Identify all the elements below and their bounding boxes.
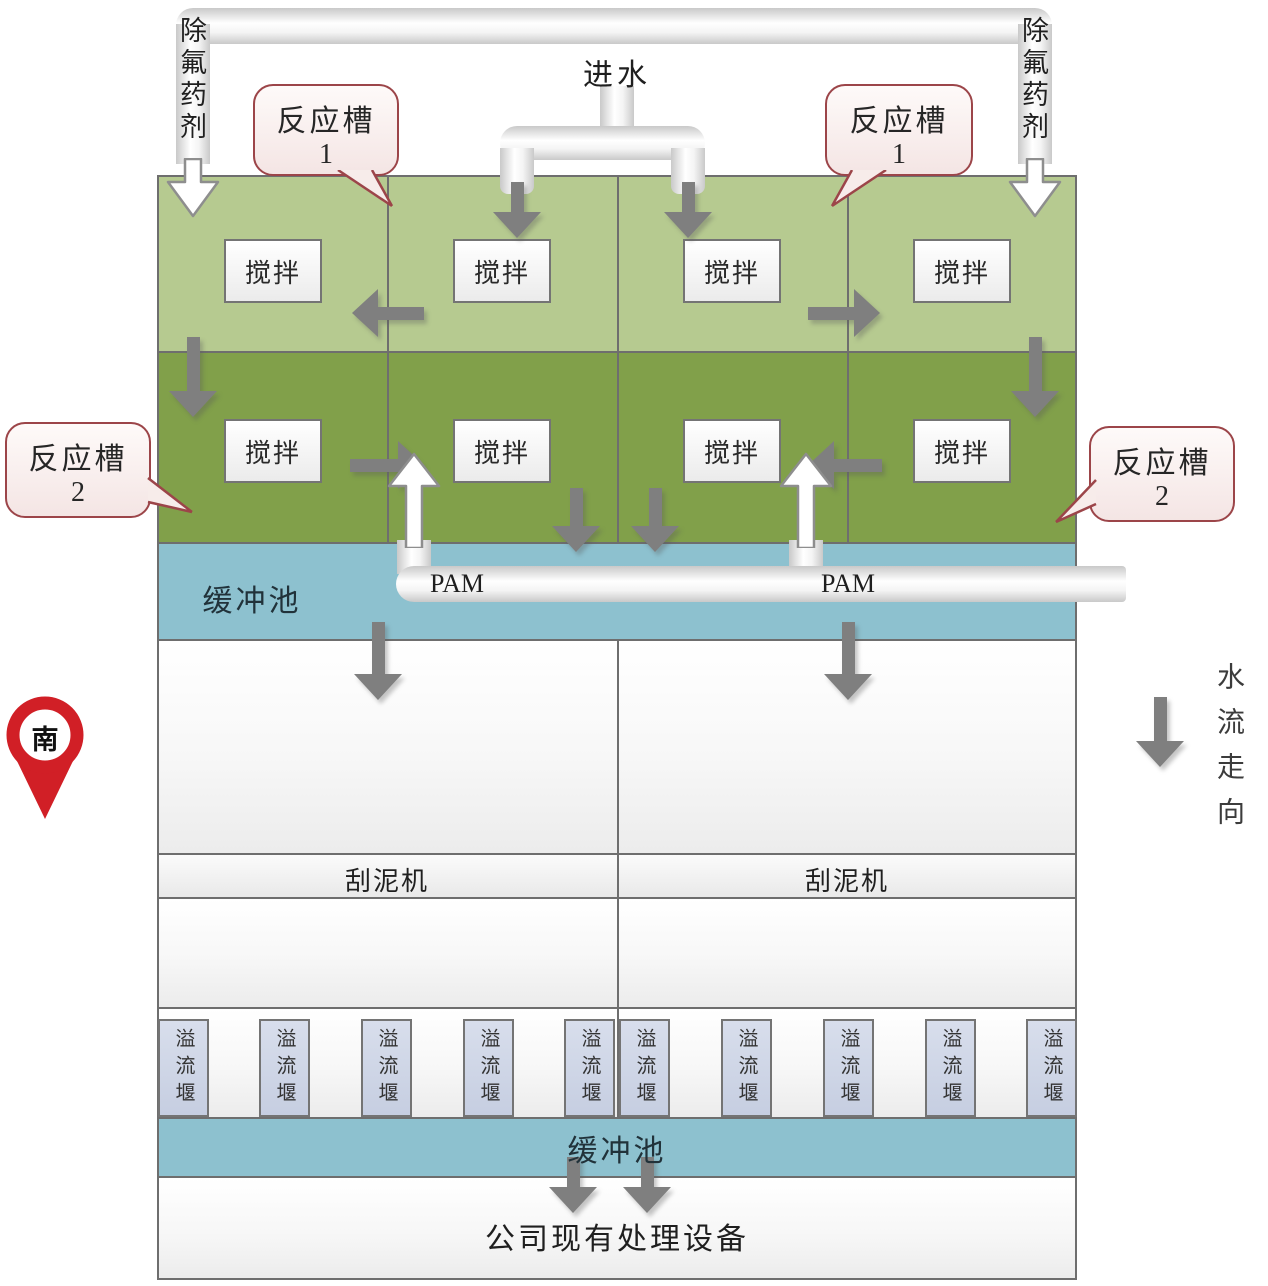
callout-tail: [332, 170, 396, 210]
lower-tank-row: [157, 897, 1077, 1009]
callout-number: 1: [255, 140, 397, 169]
overflow-weir: 溢流堰: [259, 1019, 310, 1117]
flow-arrow-down: [631, 488, 679, 552]
flow-arrow-down: [552, 488, 600, 552]
callout-title: 反应槽: [7, 434, 149, 478]
divider: [617, 641, 619, 853]
stir-box: 搅拌: [453, 239, 551, 303]
callout-reaction-tank2-right: 反应槽 2: [1089, 426, 1235, 522]
callout-number: 2: [1091, 482, 1233, 511]
overflow-weir: 溢流堰: [619, 1019, 670, 1117]
chem-down-arrow-left-icon: [164, 158, 222, 218]
callout-title: 反应槽: [1091, 438, 1233, 482]
flow-arrow-down: [824, 622, 872, 700]
stir-box: 搅拌: [224, 419, 322, 483]
divider: [617, 899, 619, 1007]
chemical-pipe-top: [176, 8, 1052, 44]
flow-arrow-right: [808, 289, 880, 337]
chem-label-right: 除氟药剂: [1019, 16, 1053, 144]
inlet-label: 进水: [557, 50, 677, 94]
outlet-label: 公司现有处理设备: [157, 1214, 1077, 1258]
divider: [617, 177, 619, 351]
callout-tail: [828, 170, 892, 210]
callout-number: 1: [827, 140, 971, 169]
inlet-flow-arrow-left: [493, 182, 541, 238]
callout-number: 2: [7, 478, 149, 507]
callout-tail: [146, 476, 196, 516]
overflow-weir: 溢流堰: [564, 1019, 615, 1117]
stir-box: 搅拌: [913, 419, 1011, 483]
pam-up-arrow-left-icon: [385, 452, 443, 548]
scraper-label-right: 刮泥机: [617, 861, 1077, 898]
callout-reaction-tank1-right: 反应槽 1: [825, 84, 973, 176]
stir-box: 搅拌: [913, 239, 1011, 303]
callout-reaction-tank2-left: 反应槽 2: [5, 422, 151, 518]
overflow-weir: 溢流堰: [463, 1019, 514, 1117]
flow-arrow-down: [169, 337, 217, 417]
process-diagram: 除氟药剂 除氟药剂 进水 缓冲池 刮泥机 刮泥机: [0, 0, 1268, 1286]
stir-box: 搅拌: [224, 239, 322, 303]
overflow-weir: 溢流堰: [721, 1019, 772, 1117]
pam-pipe: [396, 566, 1126, 602]
chem-down-arrow-right-icon: [1006, 158, 1064, 218]
callout-reaction-tank1-left: 反应槽 1: [253, 84, 399, 176]
pam-label-left: PAM: [422, 569, 492, 599]
overflow-weir: 溢流堰: [158, 1019, 209, 1117]
flow-direction-arrow: [1136, 697, 1184, 767]
stir-box: 搅拌: [453, 419, 551, 483]
overflow-weir: 溢流堰: [1026, 1019, 1077, 1117]
callout-title: 反应槽: [255, 96, 397, 140]
sedimentation-tanks: [157, 639, 1077, 855]
buffer-pool-top-label: 缓冲池: [182, 576, 322, 620]
inlet-flow-arrow-right: [664, 182, 712, 238]
south-pin-label: 南: [15, 718, 75, 757]
stir-box: 搅拌: [683, 239, 781, 303]
overflow-weir: 溢流堰: [361, 1019, 412, 1117]
overflow-weir: 溢流堰: [925, 1019, 976, 1117]
stir-box: 搅拌: [683, 419, 781, 483]
callout-title: 反应槽: [827, 96, 971, 140]
divider: [617, 353, 619, 542]
chem-label-left: 除氟药剂: [177, 16, 211, 144]
flow-direction-label: 水流走向: [1212, 662, 1248, 842]
scraper-label-left: 刮泥机: [157, 861, 617, 898]
buffer-pool-bottom-label: 缓冲池: [157, 1126, 1077, 1170]
callout-tail: [1052, 478, 1098, 526]
pam-up-arrow-right-icon: [777, 452, 835, 548]
flow-arrow-down: [354, 622, 402, 700]
flow-arrow-left: [352, 289, 424, 337]
overflow-weir: 溢流堰: [823, 1019, 874, 1117]
pam-label-right: PAM: [813, 569, 883, 599]
flow-arrow-down: [1011, 337, 1059, 417]
